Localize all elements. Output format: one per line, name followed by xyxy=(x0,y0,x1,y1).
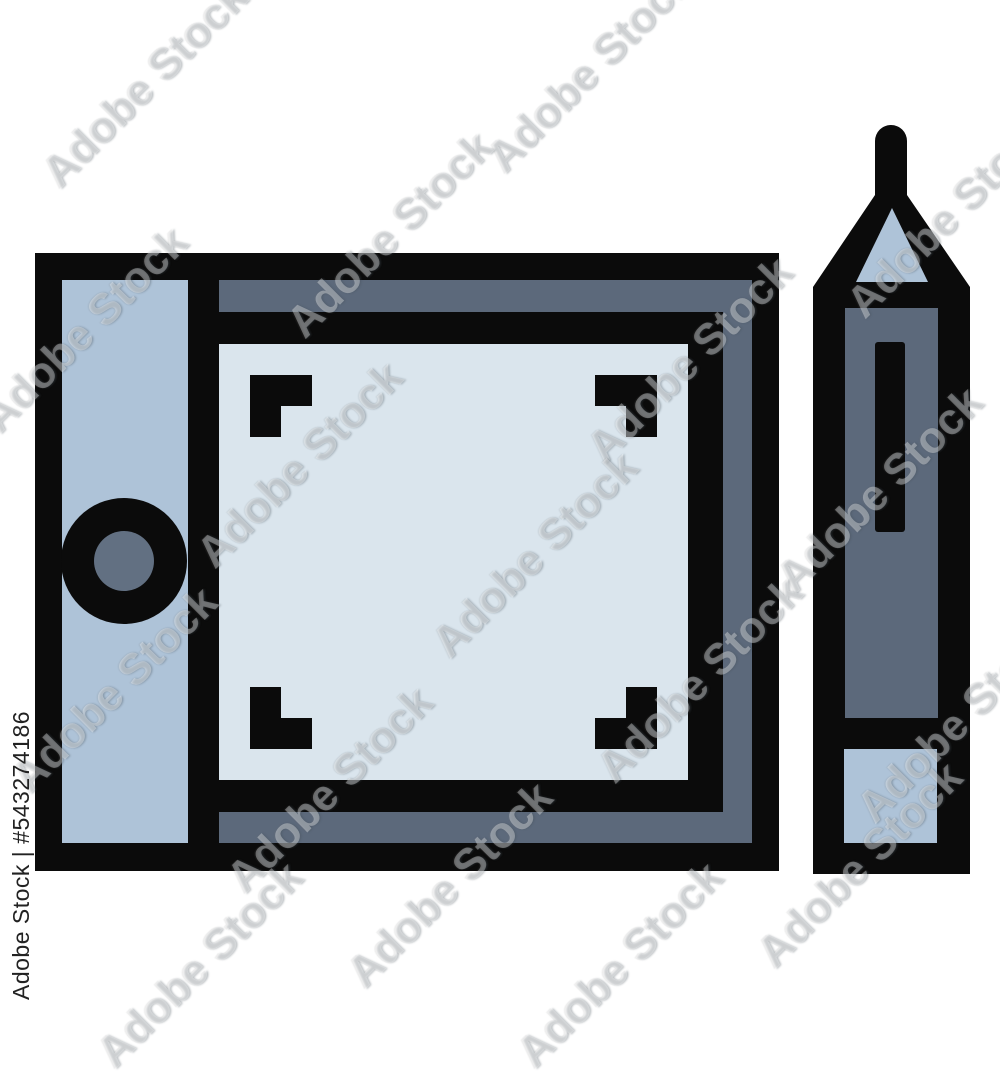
watermark-asset-id: Adobe Stock | #543274186 xyxy=(8,711,35,1000)
graphics-tablet xyxy=(35,253,779,871)
tablet-screen xyxy=(219,344,688,780)
tablet-stylus-icon xyxy=(0,0,1000,1000)
tablet-dial-inner xyxy=(94,531,154,591)
stock-image-canvas: Adobe StockAdobe StockAdobe StockAdobe S… xyxy=(0,0,1000,1000)
stylus-side-button xyxy=(875,342,905,532)
stylus xyxy=(813,125,970,874)
stylus-eraser xyxy=(844,749,937,843)
